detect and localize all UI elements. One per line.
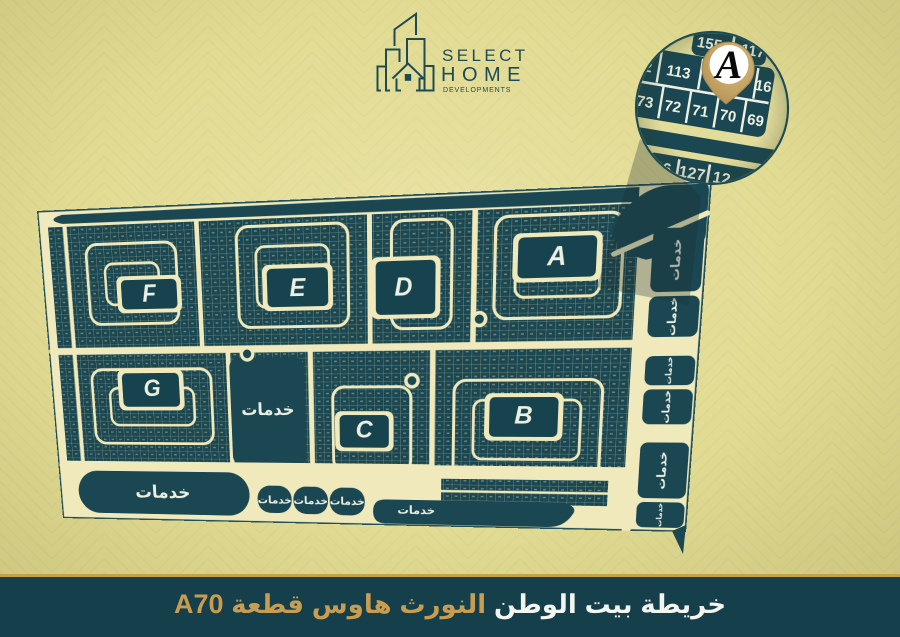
svg-text:A: A: [713, 42, 743, 87]
svg-text:SELECT: SELECT: [442, 46, 529, 65]
svg-text:HOME: HOME: [441, 64, 527, 86]
svg-text:DEVELOPMENTS: DEVELOPMENTS: [443, 87, 511, 94]
svg-text:A70: A70: [174, 589, 224, 619]
